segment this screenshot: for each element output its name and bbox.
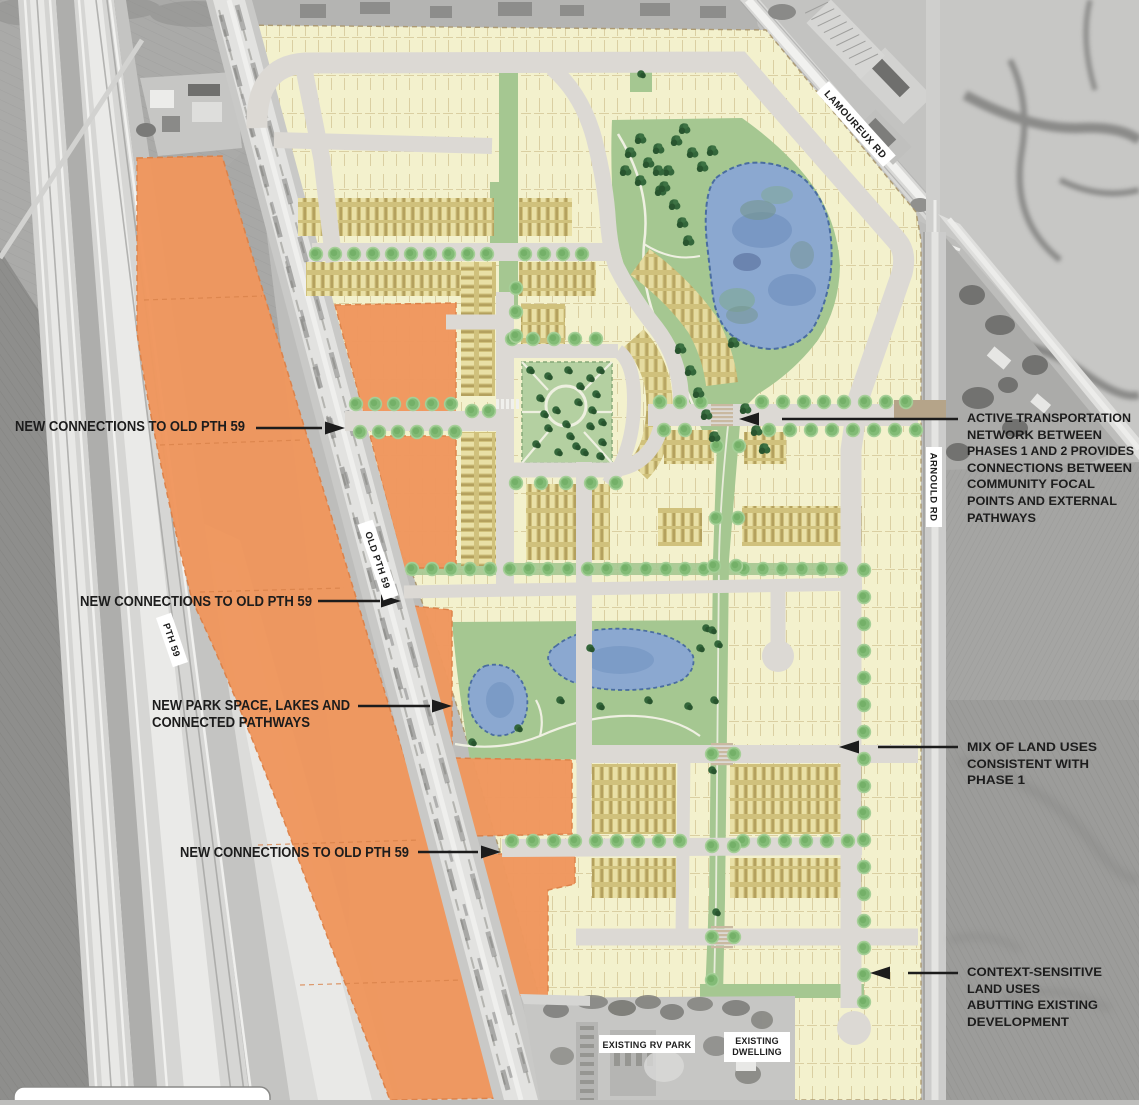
svg-text:MIX OF LAND USES: MIX OF LAND USES [967,742,1097,754]
svg-text:CONSISTENT WITH: CONSISTENT WITH [967,759,1089,771]
svg-text:CONTEXT-SENSITIVE: CONTEXT-SENSITIVE [967,967,1102,979]
svg-text:NETWORK BETWEEN: NETWORK BETWEEN [967,430,1102,442]
svg-text:PHASES 1 AND 2 PROVIDES: PHASES 1 AND 2 PROVIDES [967,446,1134,458]
svg-text:LAND USES: LAND USES [967,984,1040,996]
svg-text:NEW CONNECTIONS TO OLD PTH 59: NEW CONNECTIONS TO OLD PTH 59 [180,845,409,861]
svg-text:CONNECTED PATHWAYS: CONNECTED PATHWAYS [152,715,310,731]
svg-text:NEW CONNECTIONS TO OLD PTH 59: NEW CONNECTIONS TO OLD PTH 59 [15,419,245,435]
svg-text:PHASE 1: PHASE 1 [967,775,1026,787]
svg-text:CONNECTIONS BETWEEN: CONNECTIONS BETWEEN [967,463,1132,475]
svg-text:EXISTING: EXISTING [735,1036,779,1046]
svg-text:EXISTING RV PARK: EXISTING RV PARK [603,1040,692,1050]
svg-text:NEW PARK SPACE, LAKES AND: NEW PARK SPACE, LAKES AND [152,698,350,714]
svg-text:DEVELOPMENT: DEVELOPMENT [967,1017,1069,1029]
svg-text:DWELLING: DWELLING [732,1047,782,1057]
svg-text:COMMUNITY FOCAL: COMMUNITY FOCAL [967,479,1095,491]
svg-text:ABUTTING EXISTING: ABUTTING EXISTING [967,1000,1098,1012]
svg-text:POINTS AND EXTERNAL: POINTS AND EXTERNAL [967,496,1117,508]
svg-text:ARNOULD RD: ARNOULD RD [928,453,939,522]
svg-text:PATHWAYS: PATHWAYS [967,513,1036,525]
svg-text:NEW CONNECTIONS TO OLD PTH 59: NEW CONNECTIONS TO OLD PTH 59 [80,594,312,610]
svg-text:ACTIVE TRANSPORTATION: ACTIVE TRANSPORTATION [967,413,1131,425]
